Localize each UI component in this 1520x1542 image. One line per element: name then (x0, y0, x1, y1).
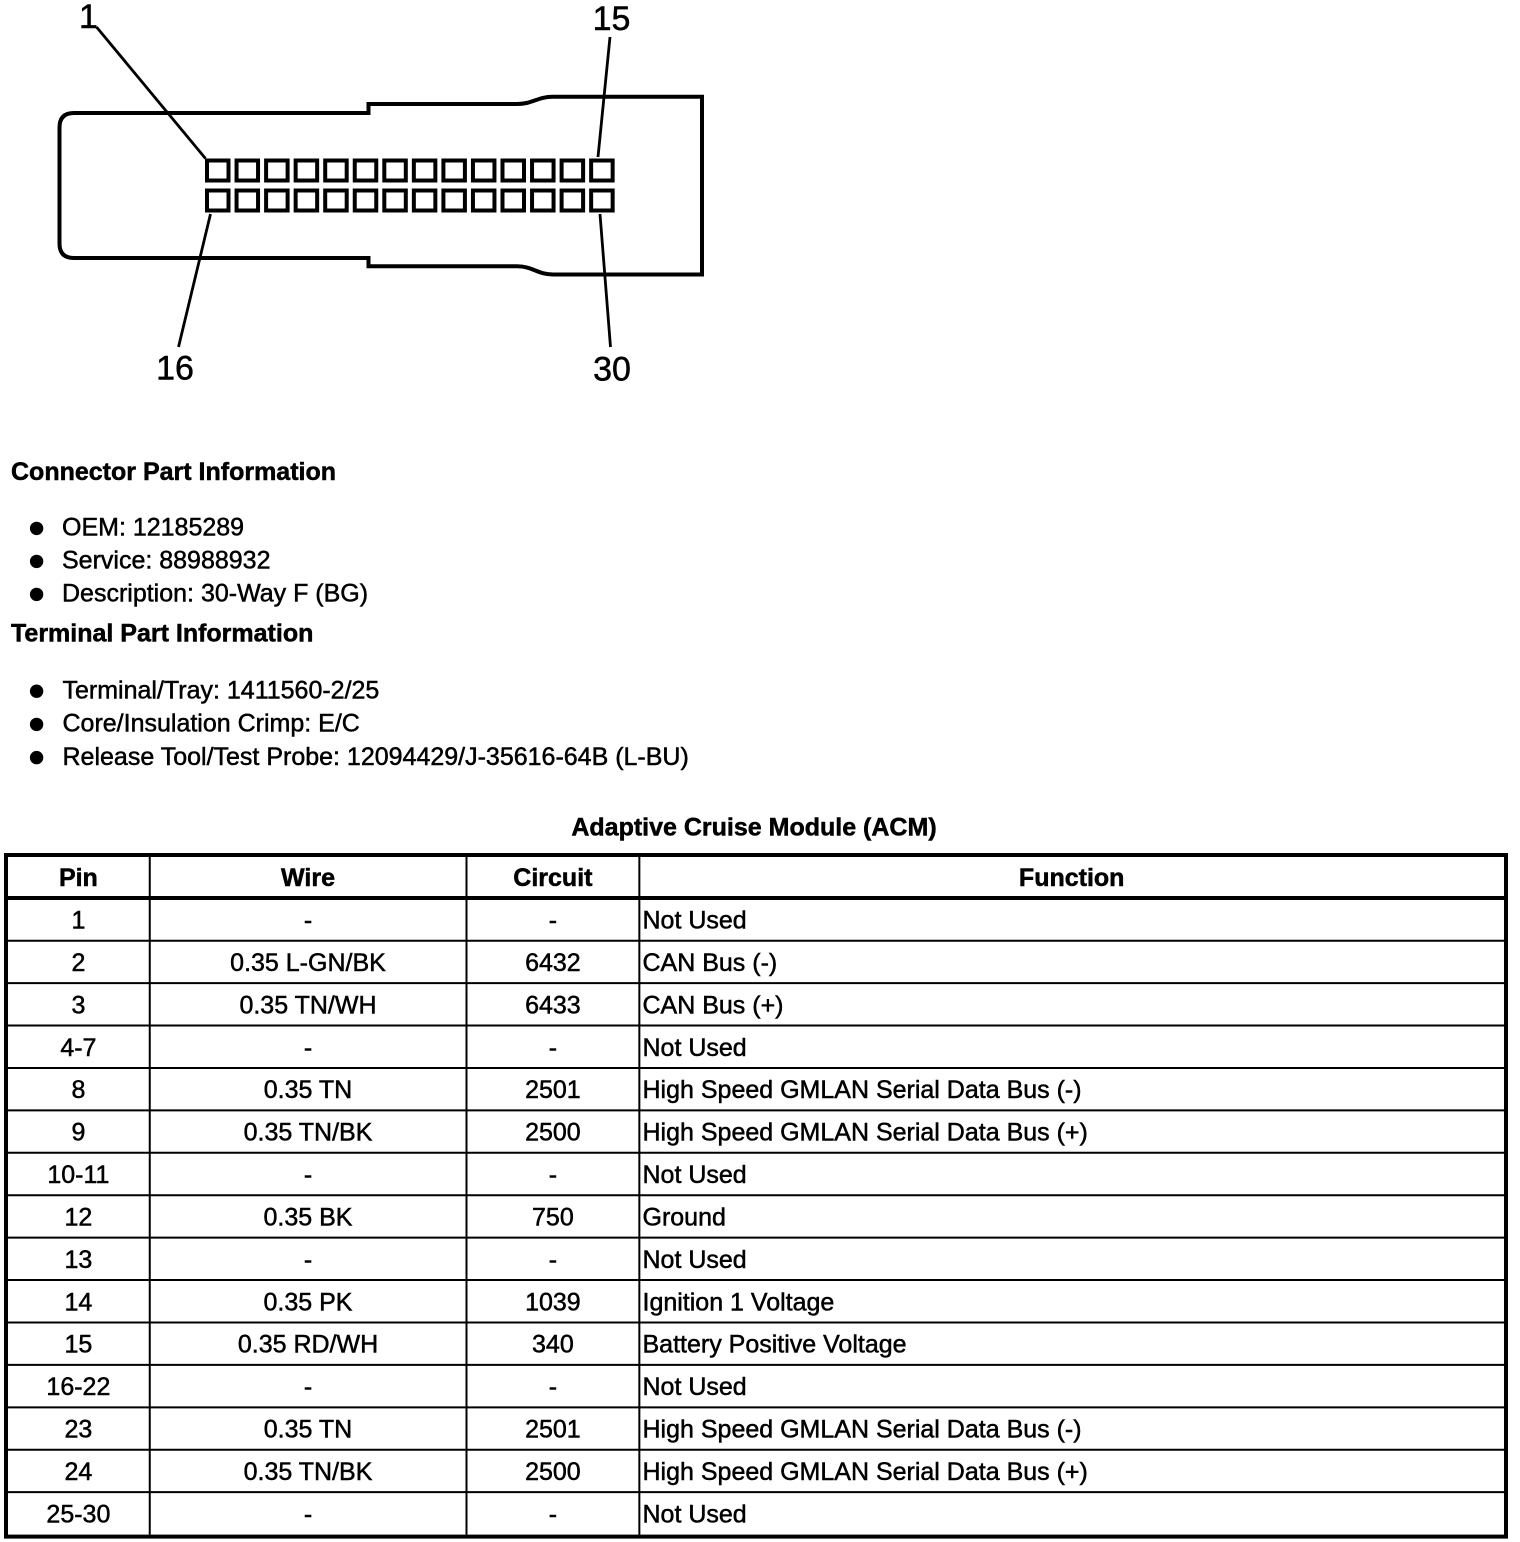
svg-text:Circuit: Circuit (513, 864, 593, 892)
svg-text:0.35 TN: 0.35 TN (264, 1076, 352, 1104)
svg-text:Release Tool/Test Probe: 12094: Release Tool/Test Probe: 12094429/J-3561… (63, 743, 689, 771)
svg-text:High Speed GMLAN Serial Data B: High Speed GMLAN Serial Data Bus (-) (643, 1076, 1082, 1104)
svg-text:2501: 2501 (525, 1416, 581, 1444)
svg-text:CAN Bus (-): CAN Bus (-) (643, 949, 778, 977)
svg-text:-: - (549, 1034, 557, 1062)
svg-text:-: - (549, 1161, 557, 1189)
svg-text:10-11: 10-11 (47, 1161, 109, 1189)
svg-text:24: 24 (64, 1458, 92, 1486)
svg-text:30: 30 (593, 351, 631, 389)
svg-text:-: - (549, 907, 557, 935)
svg-text:8: 8 (71, 1076, 85, 1104)
svg-text:Adaptive Cruise Module (ACM): Adaptive Cruise Module (ACM) (571, 813, 936, 841)
svg-text:-: - (304, 1246, 312, 1274)
svg-text:High Speed GMLAN Serial Data B: High Speed GMLAN Serial Data Bus (+) (643, 1458, 1088, 1486)
svg-text:2501: 2501 (525, 1076, 581, 1104)
svg-text:6432: 6432 (525, 949, 581, 977)
svg-text:1: 1 (79, 0, 98, 36)
svg-text:12: 12 (64, 1203, 92, 1231)
svg-text:Terminal Part Information: Terminal Part Information (11, 619, 313, 647)
svg-text:23: 23 (64, 1416, 92, 1444)
svg-text:25-30: 25-30 (46, 1500, 110, 1528)
svg-text:340: 340 (532, 1331, 574, 1359)
svg-text:0.35 RD/WH: 0.35 RD/WH (238, 1331, 378, 1359)
svg-text:-: - (304, 1161, 312, 1189)
svg-text:2: 2 (71, 949, 85, 977)
svg-text:High Speed GMLAN Serial Data B: High Speed GMLAN Serial Data Bus (+) (643, 1119, 1088, 1147)
svg-text:1: 1 (71, 907, 85, 935)
svg-text:Connector Part Information: Connector Part Information (11, 458, 336, 486)
svg-text:2500: 2500 (525, 1458, 581, 1486)
svg-text:750: 750 (532, 1203, 574, 1231)
svg-text:-: - (304, 1373, 312, 1401)
svg-text:Not Used: Not Used (643, 1034, 747, 1062)
svg-text:0.35 TN: 0.35 TN (264, 1416, 352, 1444)
svg-text:0.35 TN/BK: 0.35 TN/BK (244, 1119, 373, 1147)
svg-text:16-22: 16-22 (46, 1373, 110, 1401)
svg-text:OEM: 12185289: OEM: 12185289 (62, 514, 244, 542)
svg-text:-: - (304, 907, 312, 935)
svg-text:-: - (549, 1500, 557, 1528)
svg-text:Battery Positive Voltage: Battery Positive Voltage (643, 1331, 907, 1359)
svg-text:0.35 L-GN/BK: 0.35 L-GN/BK (230, 949, 386, 977)
svg-text:Function: Function (1019, 864, 1125, 892)
svg-text:15: 15 (593, 0, 631, 38)
svg-text:-: - (549, 1373, 557, 1401)
svg-text:-: - (304, 1034, 312, 1062)
svg-text:Not Used: Not Used (643, 1246, 747, 1274)
svg-text:-: - (549, 1246, 557, 1274)
svg-text:0.35 BK: 0.35 BK (264, 1203, 353, 1231)
svg-text:CAN Bus (+): CAN Bus (+) (643, 991, 784, 1019)
svg-text:4-7: 4-7 (60, 1034, 96, 1062)
svg-text:15: 15 (64, 1331, 92, 1359)
svg-text:Not Used: Not Used (643, 1500, 747, 1528)
svg-text:9: 9 (71, 1119, 85, 1147)
svg-text:Wire: Wire (281, 864, 335, 892)
svg-text:Not Used: Not Used (643, 1161, 747, 1189)
svg-text:2500: 2500 (525, 1119, 581, 1147)
svg-text:Ignition 1 Voltage: Ignition 1 Voltage (643, 1288, 835, 1316)
svg-text:3: 3 (71, 991, 85, 1019)
svg-text:14: 14 (64, 1288, 92, 1316)
svg-text:Ground: Ground (643, 1203, 726, 1231)
svg-text:Description: 30-Way F (BG): Description: 30-Way F (BG) (62, 580, 368, 608)
svg-text:-: - (304, 1500, 312, 1528)
svg-text:Terminal/Tray: 1411560-2/25: Terminal/Tray: 1411560-2/25 (63, 677, 380, 705)
svg-text:Core/Insulation Crimp: E/C: Core/Insulation Crimp: E/C (63, 710, 360, 738)
svg-text:6433: 6433 (525, 991, 581, 1019)
svg-text:Not Used: Not Used (643, 1373, 747, 1401)
svg-text:High Speed GMLAN Serial Data B: High Speed GMLAN Serial Data Bus (-) (643, 1416, 1082, 1444)
svg-text:1039: 1039 (525, 1288, 581, 1316)
svg-text:0.35 TN/BK: 0.35 TN/BK (244, 1458, 373, 1486)
svg-text:16: 16 (156, 350, 194, 388)
svg-text:Pin: Pin (59, 864, 98, 892)
svg-text:Service: 88988932: Service: 88988932 (62, 547, 270, 575)
svg-text:Not Used: Not Used (643, 907, 747, 935)
svg-text:0.35 TN/WH: 0.35 TN/WH (239, 991, 376, 1019)
svg-text:13: 13 (64, 1246, 92, 1274)
svg-text:0.35 PK: 0.35 PK (264, 1288, 353, 1316)
